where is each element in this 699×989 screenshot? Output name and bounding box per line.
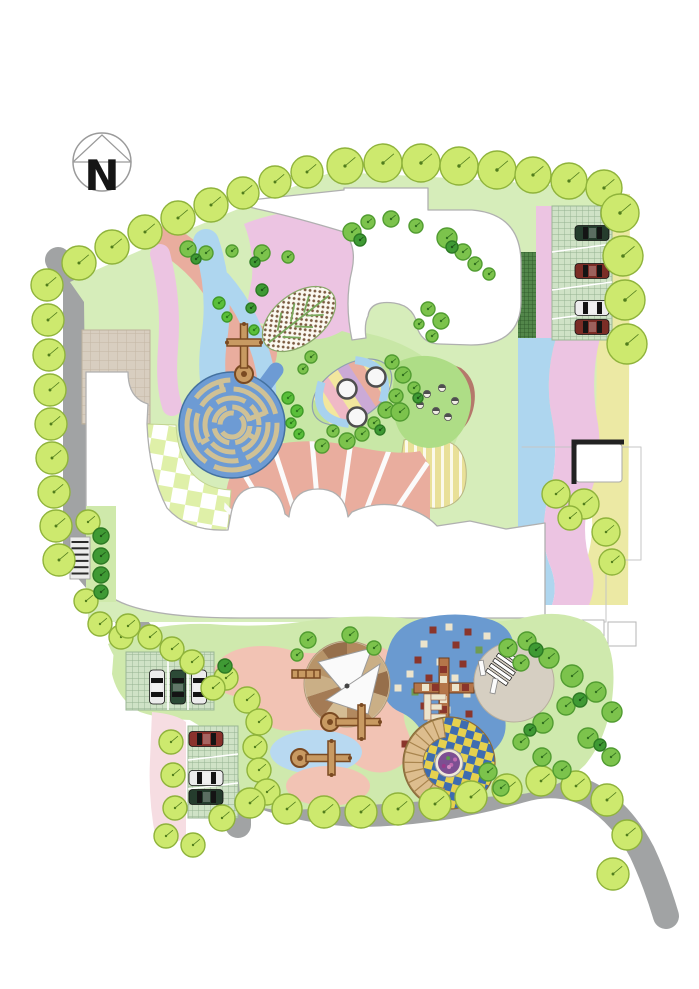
tree-center xyxy=(55,525,58,528)
tree-center xyxy=(176,216,179,219)
car-rear-window xyxy=(151,692,163,697)
play-square xyxy=(407,671,414,678)
tree-center xyxy=(246,699,248,701)
site-plan: N xyxy=(0,0,699,989)
tree-center xyxy=(221,817,223,819)
tree-center xyxy=(535,649,537,651)
tree-center xyxy=(225,677,227,679)
tree-center xyxy=(100,535,102,537)
tree-center xyxy=(46,284,49,287)
tree-center xyxy=(195,258,197,260)
cross-block xyxy=(422,684,429,691)
tree-center xyxy=(149,636,151,638)
equipment-knob xyxy=(348,756,352,760)
tree-center xyxy=(310,356,312,358)
car-roof xyxy=(203,773,210,783)
tree-center xyxy=(402,374,404,376)
rect xyxy=(431,694,446,700)
tree-center xyxy=(359,239,361,241)
tree-center xyxy=(307,639,309,641)
site-plan-page: N xyxy=(0,0,699,989)
tree-center xyxy=(599,744,601,746)
play-square xyxy=(430,627,437,634)
tree-center xyxy=(500,787,502,789)
car-rear-window xyxy=(597,302,602,314)
play-square xyxy=(484,633,491,640)
tree-center xyxy=(561,769,563,771)
tree-center xyxy=(209,203,212,206)
tree-center xyxy=(548,657,550,659)
tree-center xyxy=(231,250,233,252)
car-roof xyxy=(589,228,596,238)
crosswalk-bar xyxy=(72,541,89,543)
tree-center xyxy=(575,785,578,788)
play-equipment xyxy=(292,670,320,678)
tree-center xyxy=(171,648,173,650)
tree-center xyxy=(296,654,298,656)
equipment-knob xyxy=(330,773,334,777)
tree-center xyxy=(100,555,102,557)
tree-center xyxy=(127,625,129,627)
rect xyxy=(431,704,442,710)
tree-center xyxy=(296,410,298,412)
tree-center xyxy=(53,491,56,494)
tree-center xyxy=(187,248,189,250)
tree-center xyxy=(290,422,292,424)
tree-center xyxy=(346,440,348,442)
tree-center xyxy=(323,811,326,814)
tree-center xyxy=(626,834,629,837)
tree-center xyxy=(470,796,473,799)
car-roof xyxy=(173,684,183,691)
tree-center xyxy=(287,256,289,258)
tree-center xyxy=(415,225,417,227)
tree-center xyxy=(261,289,263,291)
tree-center xyxy=(77,261,80,264)
play-square xyxy=(395,685,402,692)
tree-center xyxy=(579,699,581,701)
tree-center xyxy=(462,251,464,253)
tree-center xyxy=(242,192,245,195)
maze xyxy=(179,370,285,478)
tree-center xyxy=(100,591,102,593)
equipment-knob xyxy=(259,341,263,345)
shed-ne xyxy=(576,444,622,482)
car-rear-window xyxy=(211,791,216,803)
tree-center xyxy=(58,559,61,562)
tree-center xyxy=(487,771,489,773)
flower-dot xyxy=(453,758,457,762)
band-pink-west xyxy=(160,254,172,406)
tree-center xyxy=(488,273,490,275)
tree-center xyxy=(274,181,277,184)
tree-center xyxy=(258,721,260,723)
tree-center xyxy=(399,411,401,413)
tree-center xyxy=(555,493,558,496)
tree-center xyxy=(261,252,263,254)
tree-center xyxy=(390,218,392,220)
tree-center xyxy=(434,803,437,806)
tree-center xyxy=(571,675,573,677)
tree-center xyxy=(540,780,543,783)
tree-center xyxy=(218,302,220,304)
car-roof xyxy=(152,684,162,691)
car xyxy=(575,226,609,241)
tree-center xyxy=(440,320,442,322)
tree-center xyxy=(332,430,334,432)
tree-center xyxy=(567,179,570,182)
tree-center xyxy=(286,808,289,811)
car-rear-window xyxy=(172,692,184,697)
tree-center xyxy=(249,802,252,805)
circle xyxy=(327,719,333,725)
tree-center xyxy=(343,164,346,167)
tree-center xyxy=(174,807,176,809)
car xyxy=(150,670,165,704)
tree-center xyxy=(569,517,571,519)
tree-center xyxy=(254,746,256,748)
tree-center xyxy=(191,661,193,663)
car-windshield xyxy=(583,321,588,333)
car xyxy=(575,264,609,279)
tree-center xyxy=(531,173,534,176)
tree-center xyxy=(99,623,101,625)
tree-center xyxy=(446,237,448,239)
tree-center xyxy=(192,844,194,846)
tree-center xyxy=(541,756,543,758)
play-dome xyxy=(367,368,386,387)
tree-center xyxy=(542,722,544,724)
equipment-knob xyxy=(225,341,229,345)
tree-center xyxy=(391,361,393,363)
tree-center xyxy=(413,387,415,389)
car xyxy=(575,301,609,316)
car xyxy=(171,670,186,704)
tree-center xyxy=(51,457,54,460)
car-rear-window xyxy=(597,227,602,239)
circle xyxy=(241,371,247,377)
equipment-knob xyxy=(330,739,334,743)
tree-center xyxy=(165,835,167,837)
car-windshield xyxy=(197,733,202,745)
tree-center xyxy=(306,171,309,174)
cross-block xyxy=(440,666,447,673)
tree-center xyxy=(381,161,384,164)
tree-center xyxy=(602,186,605,189)
tree-center xyxy=(254,261,256,263)
tree-center xyxy=(520,741,522,743)
play-square xyxy=(465,629,472,636)
tree-center xyxy=(100,574,102,576)
tree-center xyxy=(349,634,351,636)
play-square xyxy=(466,711,473,718)
car-windshield xyxy=(583,265,588,277)
car xyxy=(575,320,609,335)
tree-center xyxy=(520,662,522,664)
equipment-bar xyxy=(328,741,335,775)
circle xyxy=(297,755,303,761)
car-roof xyxy=(589,266,596,276)
tree-center xyxy=(611,711,613,713)
car-windshield xyxy=(197,791,202,803)
tree-center xyxy=(298,433,300,435)
tree-center xyxy=(595,691,597,693)
car xyxy=(189,771,223,786)
compass: N xyxy=(73,133,131,200)
tree-center xyxy=(170,741,172,743)
tree-center xyxy=(395,395,397,397)
tree-center xyxy=(427,308,429,310)
tree-center xyxy=(397,808,400,811)
play-square xyxy=(446,624,453,631)
tree-center xyxy=(565,705,567,707)
equipment-bar xyxy=(227,339,261,346)
play-square xyxy=(415,657,422,664)
tree-center xyxy=(419,161,422,164)
play-square xyxy=(421,641,428,648)
north-label: N xyxy=(84,151,119,200)
tree-center xyxy=(85,600,87,602)
car-windshield xyxy=(151,678,163,683)
building-small-2 xyxy=(608,622,636,646)
equipment-knob xyxy=(360,703,364,707)
tree-center xyxy=(418,323,420,325)
tree-center xyxy=(379,429,381,431)
tree-center xyxy=(587,737,589,739)
play-dome xyxy=(348,408,367,427)
flower-bed xyxy=(438,752,460,774)
tree-center xyxy=(361,433,363,435)
tree-center xyxy=(172,774,174,776)
tree-center xyxy=(360,811,363,814)
tree-center xyxy=(373,647,375,649)
tree-center xyxy=(351,231,353,233)
equipment-knob xyxy=(242,322,246,326)
play-square xyxy=(426,675,433,682)
play-square xyxy=(453,642,460,649)
equipment-bar xyxy=(358,705,365,739)
cross-block xyxy=(440,676,447,683)
tree-center xyxy=(266,791,268,793)
tree-center xyxy=(529,729,531,731)
tree-center xyxy=(253,329,255,331)
maze-wall-spoke xyxy=(220,382,222,391)
car-windshield xyxy=(583,302,588,314)
car-roof xyxy=(203,792,210,802)
tree-center xyxy=(110,245,113,248)
flower-dot xyxy=(442,764,446,768)
tree-center xyxy=(48,354,51,357)
tree-center xyxy=(250,307,252,309)
equipment-knob xyxy=(360,737,364,741)
car-windshield xyxy=(172,678,184,683)
tree-center xyxy=(287,397,289,399)
car xyxy=(189,790,223,805)
tree-center xyxy=(417,397,419,399)
rect xyxy=(424,694,431,720)
car xyxy=(189,732,223,747)
car-windshield xyxy=(583,227,588,239)
tree-center xyxy=(474,263,476,265)
tree-center xyxy=(385,409,387,411)
tree-center xyxy=(457,164,460,167)
tree-center xyxy=(495,168,498,171)
tree-center xyxy=(367,221,369,223)
car-roof xyxy=(589,322,596,332)
tree-center xyxy=(321,445,323,447)
tree-center xyxy=(87,521,89,523)
equipment-knob xyxy=(378,720,382,724)
play-square xyxy=(476,647,483,654)
tree-center xyxy=(50,423,53,426)
car-rear-window xyxy=(211,772,216,784)
tree-center xyxy=(226,316,228,318)
cross-block xyxy=(432,684,439,691)
tree-center xyxy=(583,503,586,506)
tree-center xyxy=(212,687,214,689)
car-rear-window xyxy=(597,265,602,277)
tree-center xyxy=(143,230,146,233)
tent-pole xyxy=(345,684,350,689)
tree-center xyxy=(451,246,453,248)
tree-center xyxy=(623,298,627,302)
car-roof xyxy=(589,303,596,313)
tree-center xyxy=(302,368,304,370)
crosswalk-bar xyxy=(72,573,89,575)
tree-center xyxy=(605,531,608,534)
tree-center xyxy=(258,769,260,771)
tree-center xyxy=(431,335,433,337)
tree-center xyxy=(224,665,226,667)
tree-center xyxy=(205,252,207,254)
flower-dot xyxy=(447,765,451,769)
tree-center xyxy=(611,561,613,563)
tree-center xyxy=(47,319,50,322)
car-roof xyxy=(203,734,210,744)
play-dome xyxy=(338,380,357,399)
flower-dot xyxy=(446,756,450,760)
tree-center xyxy=(610,756,612,758)
car-rear-window xyxy=(597,321,602,333)
play-square xyxy=(452,675,459,682)
tree-center xyxy=(606,799,609,802)
play-square xyxy=(460,661,467,668)
tree-center xyxy=(612,873,615,876)
crosswalk-bar xyxy=(72,547,89,549)
cross-block xyxy=(462,684,469,691)
cross-block xyxy=(452,684,459,691)
car-rear-window xyxy=(211,733,216,745)
tree-center xyxy=(526,640,528,642)
tree-center xyxy=(618,211,621,214)
car-windshield xyxy=(197,772,202,784)
tree-center xyxy=(507,647,509,649)
tree-center xyxy=(49,389,52,392)
tree-center xyxy=(621,254,625,258)
tree-center xyxy=(625,342,629,346)
tree-center xyxy=(373,422,375,424)
